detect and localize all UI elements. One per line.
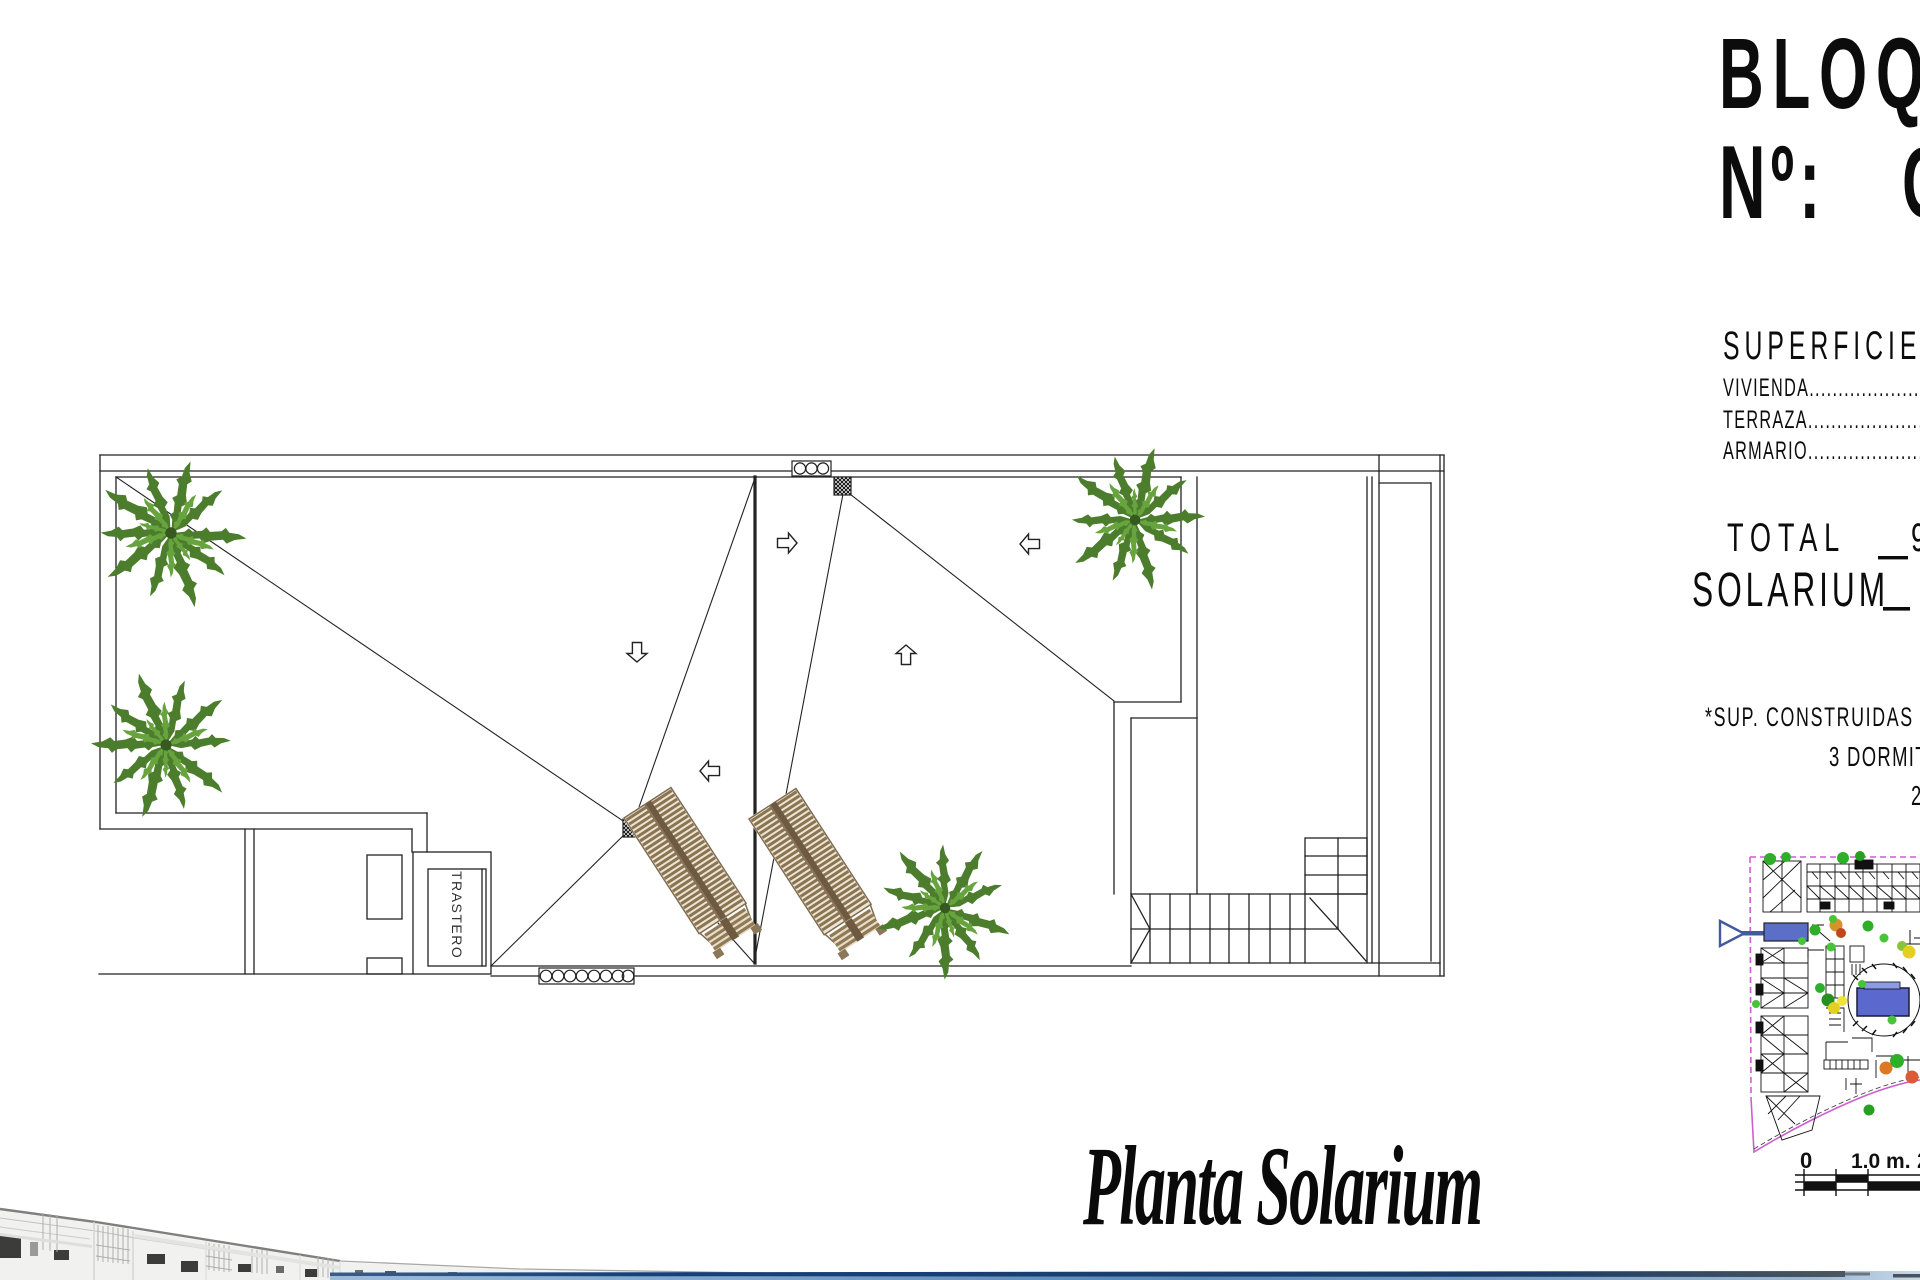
svg-text:SOLARIUM: SOLARIUM xyxy=(1692,562,1889,616)
svg-text:C: C xyxy=(1902,127,1920,239)
svg-text:TOTAL: TOTAL xyxy=(1727,516,1846,560)
svg-text:TRASTERO: TRASTERO xyxy=(449,871,465,959)
svg-text:*SUP. CONSTRUIDAS: *SUP. CONSTRUIDAS xyxy=(1705,701,1914,732)
svg-text:0: 0 xyxy=(1800,1148,1812,1173)
svg-text:BLOQ: BLOQ xyxy=(1719,18,1920,130)
svg-text:2: 2 xyxy=(1911,781,1920,812)
svg-text:SUPERFICIES: SUPERFICIES xyxy=(1723,324,1920,368)
svg-text:3 DORMIT: 3 DORMIT xyxy=(1829,742,1920,773)
svg-text:ARMARIO.......................: ARMARIO.................................… xyxy=(1723,438,1920,465)
svg-text:9: 9 xyxy=(1911,516,1920,560)
svg-text:Nº:: Nº: xyxy=(1719,125,1825,240)
svg-text:1.0 m.: 1.0 m. xyxy=(1851,1150,1911,1173)
svg-text:Planta Solarium: Planta Solarium xyxy=(1082,1124,1481,1249)
svg-text:VIVIENDA......................: VIVIENDA................................… xyxy=(1723,375,1920,402)
svg-text:TERRAZA.......................: TERRAZA.................................… xyxy=(1723,407,1920,434)
